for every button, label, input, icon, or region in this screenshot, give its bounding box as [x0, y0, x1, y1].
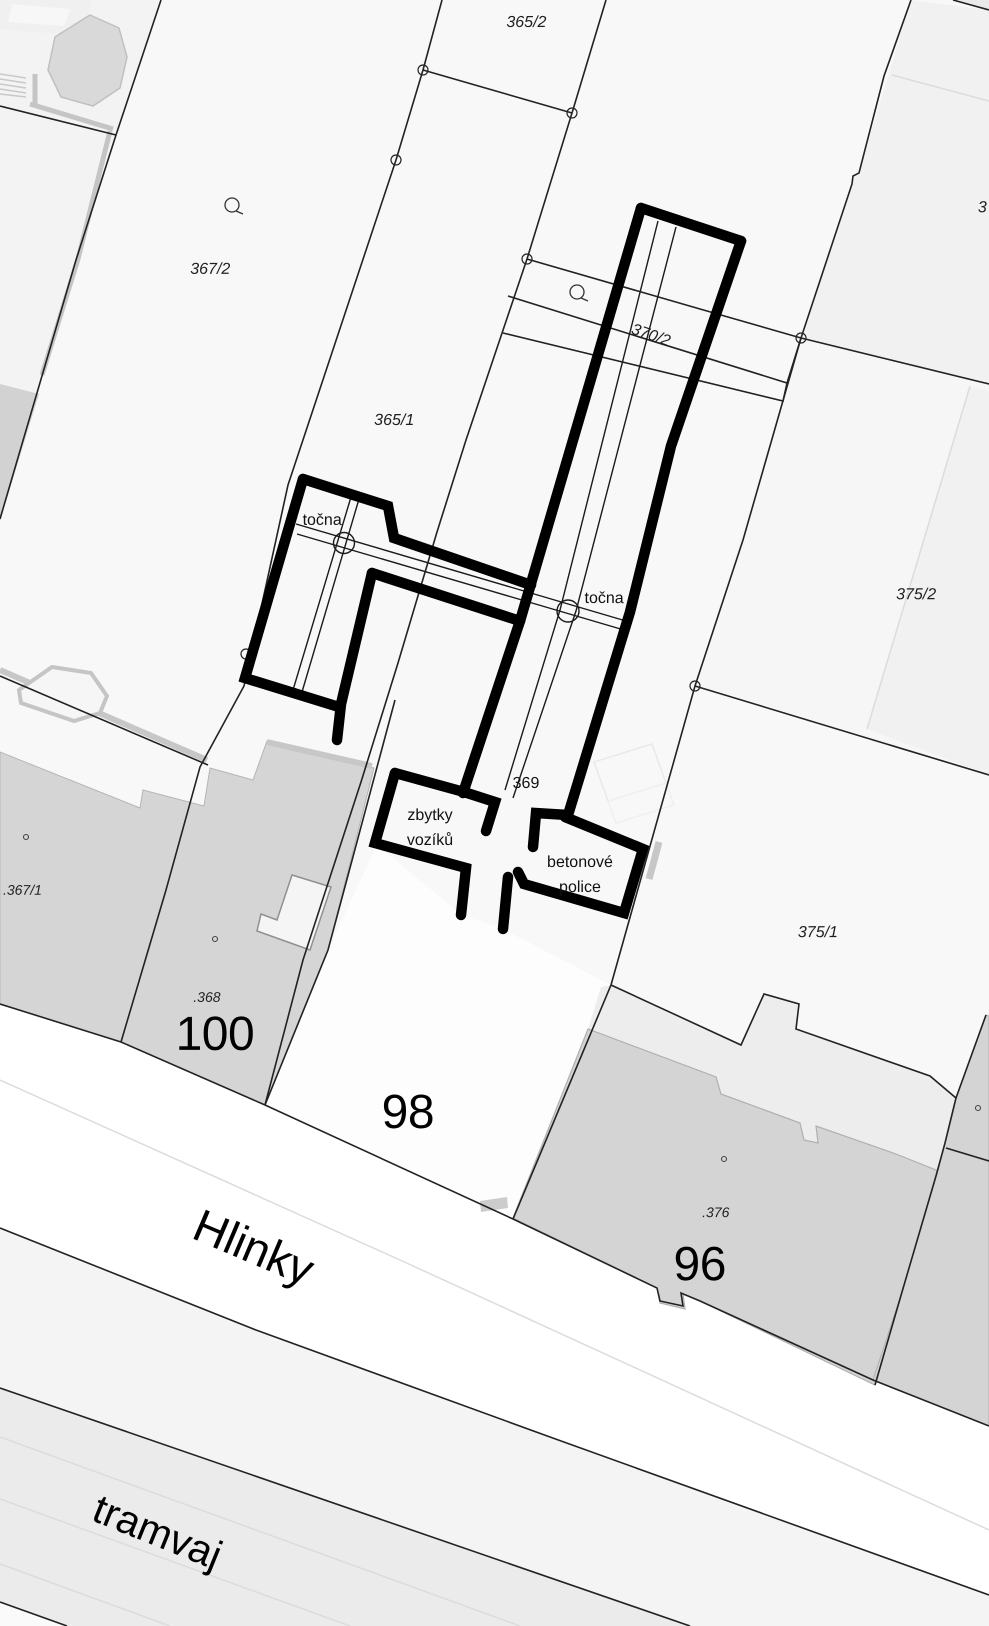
svg-text:96: 96	[674, 1238, 726, 1291]
svg-text:točna: točna	[303, 512, 342, 529]
svg-text:.368: .368	[193, 989, 220, 1005]
svg-text:98: 98	[382, 1086, 434, 1139]
svg-text:365/2: 365/2	[506, 14, 546, 31]
svg-text:vozíků: vozíků	[407, 832, 453, 849]
svg-text:365/1: 365/1	[374, 412, 414, 429]
svg-text:betonové: betonové	[547, 854, 613, 871]
svg-text:točna: točna	[585, 590, 624, 607]
svg-text:.376: .376	[702, 1204, 729, 1220]
svg-text:375/2: 375/2	[896, 586, 936, 603]
svg-text:zbytky: zbytky	[407, 807, 452, 824]
svg-text:police: police	[559, 879, 601, 896]
svg-text:375/1: 375/1	[798, 924, 838, 941]
svg-text:3: 3	[978, 199, 987, 216]
svg-text:.367/1: .367/1	[3, 882, 42, 898]
svg-text:367/2: 367/2	[190, 261, 230, 278]
svg-text:100: 100	[176, 1008, 255, 1061]
svg-text:369: 369	[513, 775, 540, 792]
